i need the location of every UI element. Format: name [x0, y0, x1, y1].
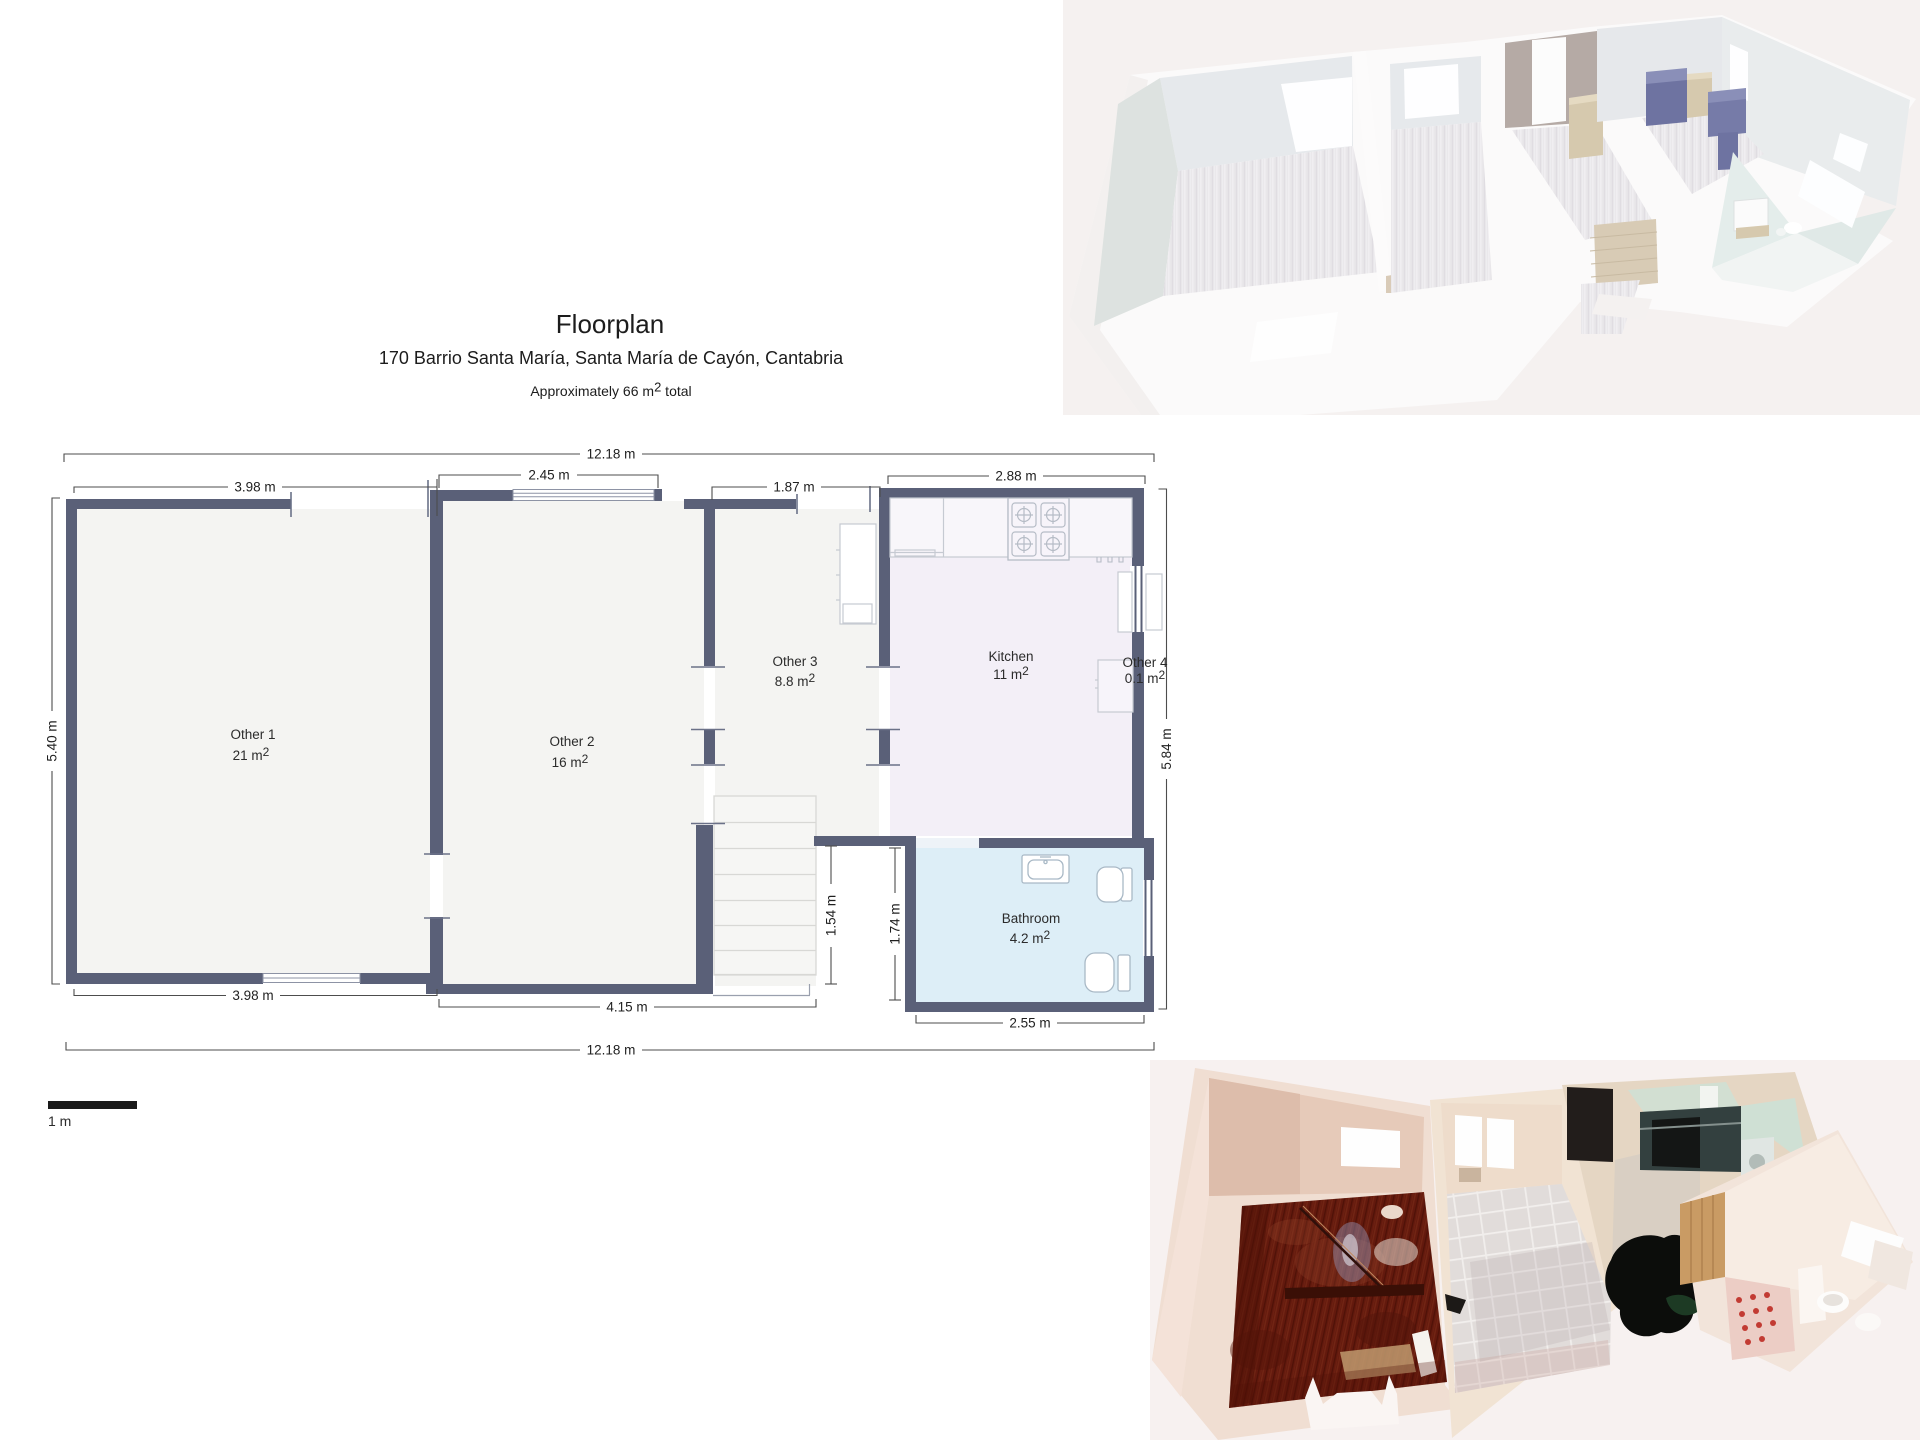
svg-text:1.74 m: 1.74 m — [888, 903, 903, 944]
svg-text:1 m: 1 m — [48, 1113, 71, 1129]
svg-text:0.1 m2: 0.1 m2 — [1125, 668, 1166, 686]
svg-text:1.54 m: 1.54 m — [824, 895, 839, 936]
svg-text:5.84 m: 5.84 m — [1159, 728, 1174, 769]
svg-text:Bathroom: Bathroom — [1002, 911, 1061, 926]
svg-text:12.18 m: 12.18 m — [587, 1043, 636, 1058]
svg-text:5.40 m: 5.40 m — [45, 720, 60, 761]
svg-text:170 Barrio Santa María, Santa: 170 Barrio Santa María, Santa María de C… — [379, 348, 844, 368]
svg-text:1.87 m: 1.87 m — [773, 480, 814, 495]
svg-text:2.88 m: 2.88 m — [995, 469, 1036, 484]
svg-text:Other 2: Other 2 — [549, 734, 594, 749]
svg-text:Other 3: Other 3 — [772, 654, 817, 669]
svg-text:2.45 m: 2.45 m — [528, 468, 569, 483]
svg-text:2.55 m: 2.55 m — [1009, 1016, 1050, 1031]
svg-text:Kitchen: Kitchen — [988, 649, 1033, 664]
svg-text:Floorplan: Floorplan — [556, 309, 664, 339]
svg-text:3.98 m: 3.98 m — [234, 480, 275, 495]
svg-text:Other 1: Other 1 — [230, 727, 275, 742]
svg-text:4.15 m: 4.15 m — [606, 1000, 647, 1015]
svg-text:12.18 m: 12.18 m — [587, 447, 636, 462]
svg-text:3.98 m: 3.98 m — [232, 988, 273, 1003]
svg-text:Approximately 66 m2 total: Approximately 66 m2 total — [530, 380, 691, 400]
